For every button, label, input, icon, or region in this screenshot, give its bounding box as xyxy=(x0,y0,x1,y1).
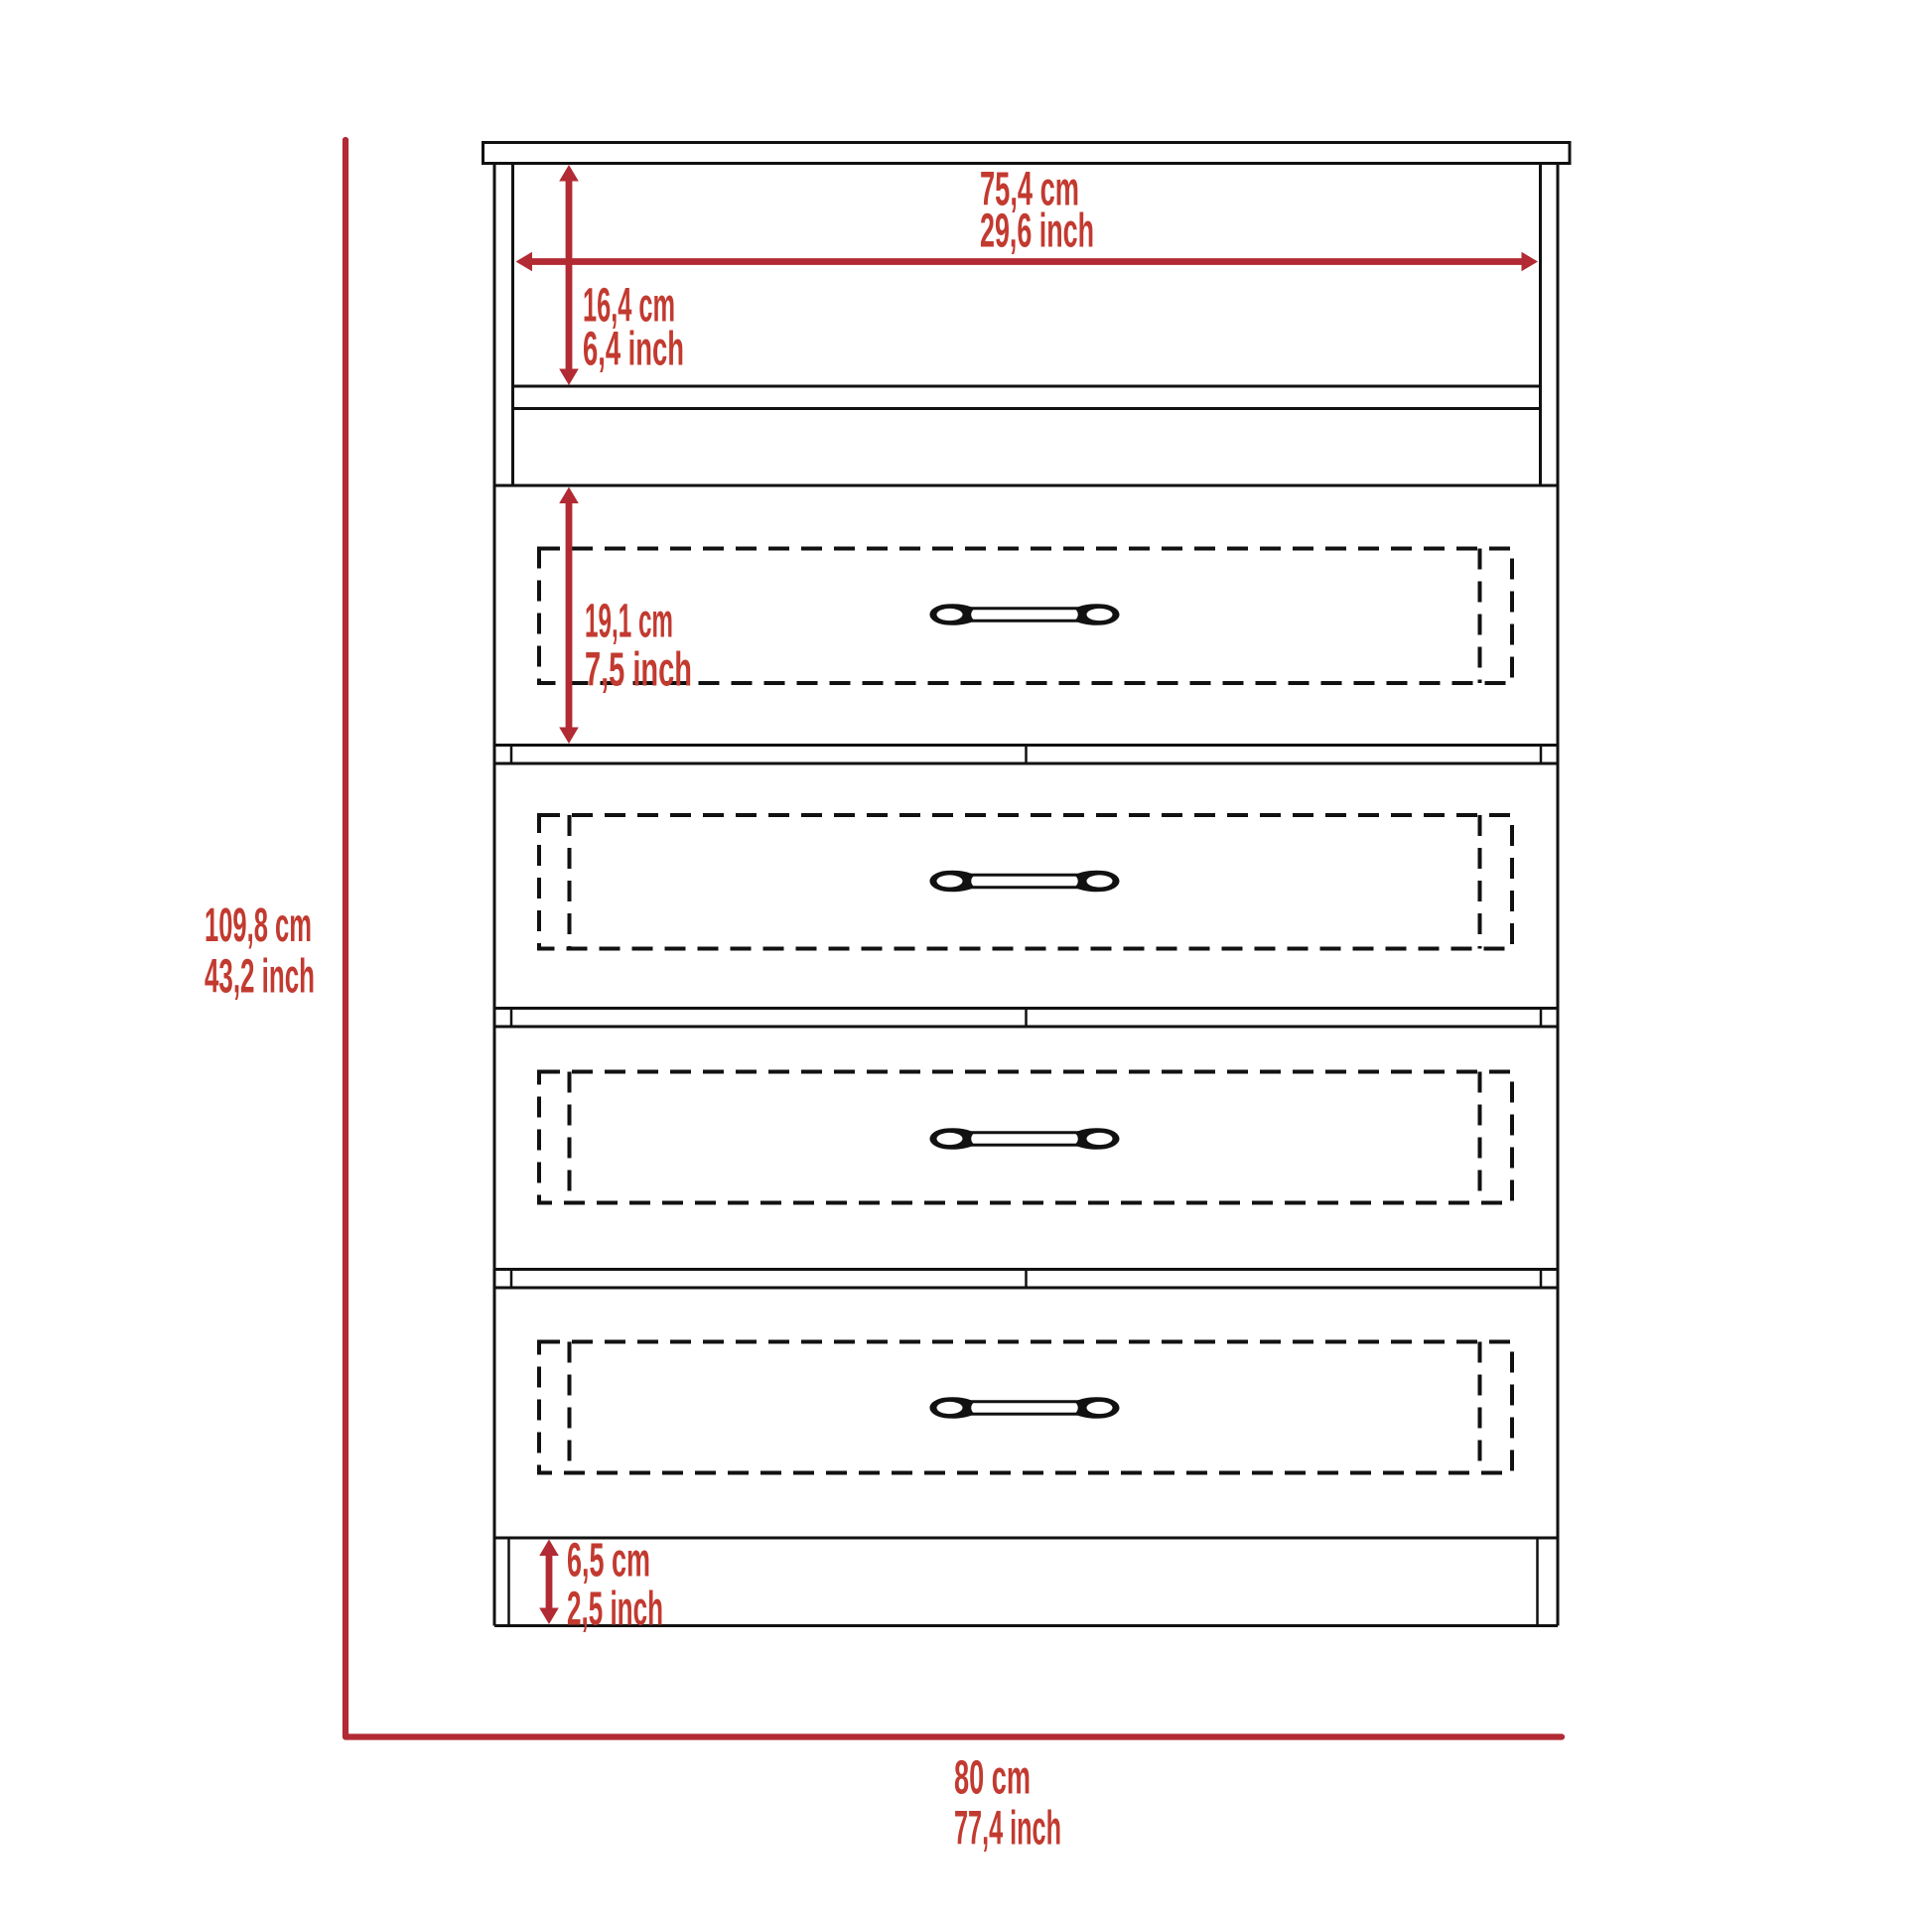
svg-text:7,5 inch: 7,5 inch xyxy=(585,643,692,697)
svg-text:77,4 inch: 77,4 inch xyxy=(954,1802,1061,1856)
svg-text:43,2 inch: 43,2 inch xyxy=(205,950,315,1004)
svg-text:2,5 inch: 2,5 inch xyxy=(567,1583,663,1636)
svg-text:29,6 inch: 29,6 inch xyxy=(980,205,1094,258)
svg-text:6,4 inch: 6,4 inch xyxy=(583,323,684,376)
svg-text:19,1 cm: 19,1 cm xyxy=(585,595,673,648)
svg-text:80 cm: 80 cm xyxy=(954,1751,1031,1805)
svg-text:6,5 cm: 6,5 cm xyxy=(567,1534,650,1587)
svg-text:109,8 cm: 109,8 cm xyxy=(205,898,312,952)
